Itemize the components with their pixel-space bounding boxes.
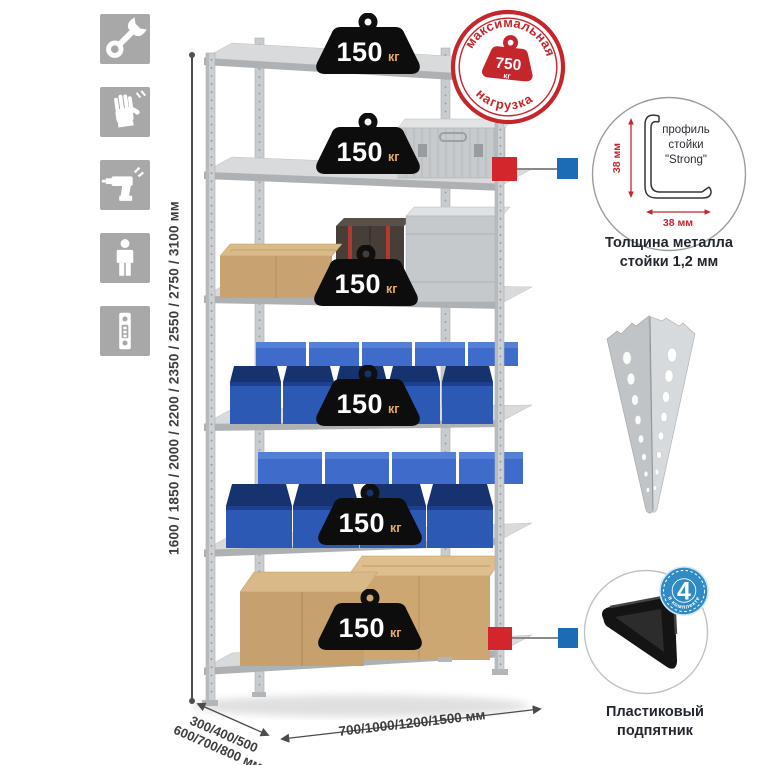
callout-line-top — [517, 168, 557, 170]
badge-value: 150 — [336, 37, 383, 68]
height-dimension-label: 1600 / 1850 / 2000 / 2200 / 2350 / 2550 … — [167, 201, 182, 555]
badge-value: 150 — [336, 137, 383, 168]
badge-value: 150 — [338, 613, 385, 644]
foot-detail-circle: 4 в комплекте — [582, 566, 716, 700]
callout-marker-red-top — [492, 157, 517, 181]
front-post-flange — [495, 58, 498, 672]
callout-line-bottom — [512, 637, 558, 639]
max-load-stamp: максимальная нагрузка 750 кг — [443, 2, 573, 132]
front-post-flange — [206, 53, 209, 703]
badge-unit: кг — [388, 150, 399, 164]
corner-post-image — [598, 303, 703, 528]
foot-caption-line2: подпятник — [606, 722, 704, 741]
feature-tile-profile — [100, 306, 150, 356]
feature-tile-gloves — [100, 87, 150, 137]
badge-value: 150 — [334, 269, 381, 300]
badge-unit: кг — [390, 521, 401, 535]
profile-title-line1: профиль — [662, 124, 710, 136]
shelf-badge-2: 150кг — [310, 113, 426, 175]
feature-tile-tools — [100, 14, 150, 64]
foot-badge: 4 в комплекте — [660, 567, 708, 615]
badge-unit: кг — [388, 402, 399, 416]
feature-tile-drill — [100, 160, 150, 210]
product-infographic: 1600 / 1850 / 2000 / 2200 / 2350 / 2550 … — [0, 0, 765, 765]
profile-dim-vertical: 38 мм — [611, 143, 623, 173]
foot-caption: Пластиковый подпятник — [606, 703, 704, 741]
wrench-icon — [100, 14, 150, 64]
profile-title-line2: стойки — [668, 139, 703, 151]
foot-badge-count: 4 — [677, 578, 691, 606]
profile-strip-icon — [100, 306, 150, 356]
profile-detail-circle: 38 мм 38 мм профиль стойки "Strong" — [590, 95, 748, 253]
shelf-badge-6: 150кг — [312, 589, 428, 651]
profile-caption-line1: Толщина металла — [605, 234, 733, 253]
shelf-badge-3: 150кг — [308, 245, 424, 307]
foot-caption-line1: Пластиковый — [606, 703, 704, 722]
callout-marker-red-bottom — [488, 627, 512, 650]
drill-icon — [100, 160, 150, 210]
badge-unit: кг — [390, 626, 401, 640]
profile-caption: Толщина металла стойки 1,2 мм — [605, 234, 733, 272]
feature-tile-person — [100, 233, 150, 283]
profile-caption-line2: стойки 1,2 мм — [605, 253, 733, 272]
bins-back-row — [256, 342, 518, 366]
shelf-badge-4: 150кг — [310, 365, 426, 427]
badge-value: 150 — [336, 389, 383, 420]
gloves-icon — [100, 87, 150, 137]
bins-back-row — [258, 452, 523, 484]
person-icon — [100, 233, 150, 283]
callout-marker-blue-bottom — [558, 628, 578, 648]
shelf-badge-1: 150кг — [310, 13, 426, 75]
callout-marker-blue-top — [557, 158, 578, 179]
badge-unit: кг — [386, 282, 397, 296]
badge-unit: кг — [388, 50, 399, 64]
shelf-badge-5: 150кг — [312, 484, 428, 546]
badge-value: 150 — [338, 508, 385, 539]
profile-title-line3: "Strong" — [665, 154, 707, 166]
profile-dim-horizontal: 38 мм — [663, 217, 693, 229]
